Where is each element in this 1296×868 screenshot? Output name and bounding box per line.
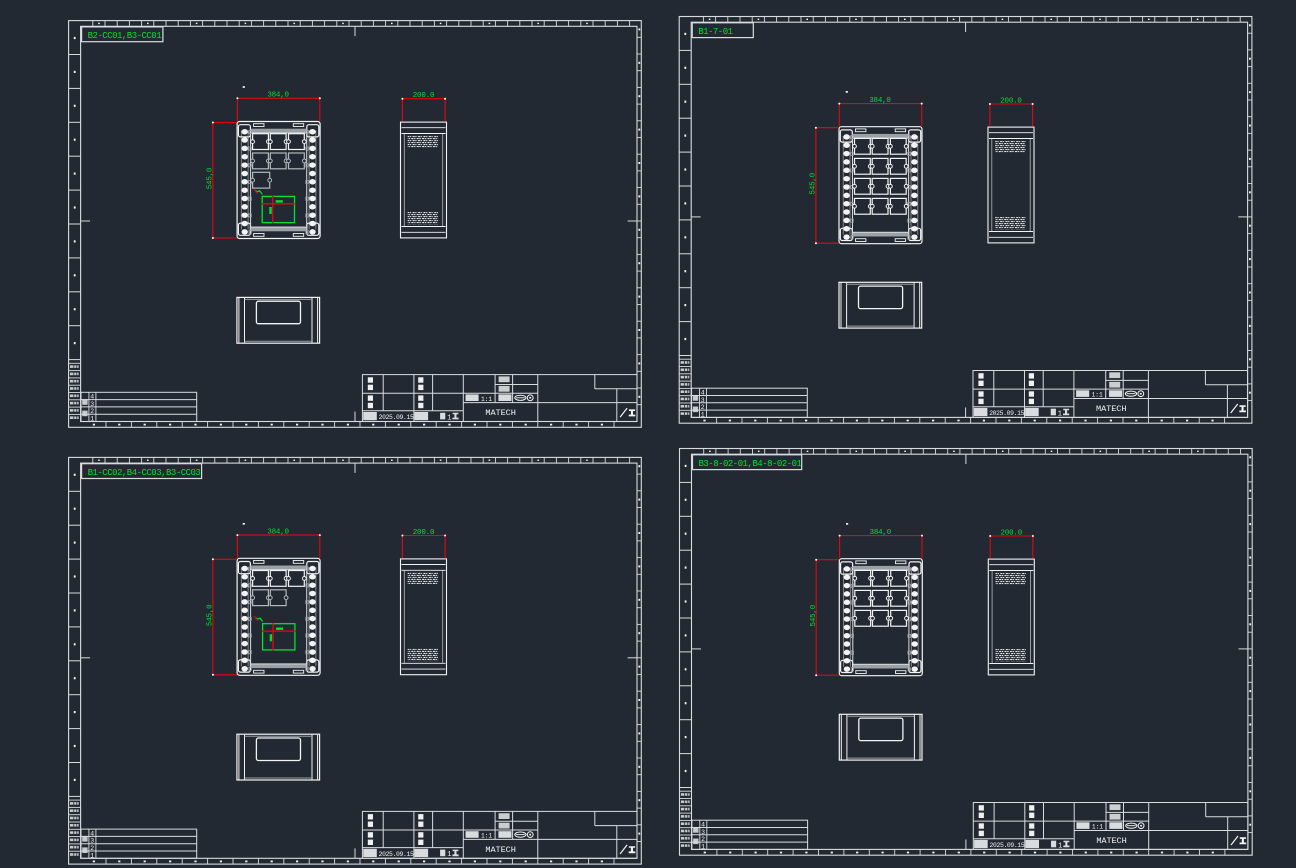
svg-text:2: 2: [90, 845, 94, 852]
svg-text:4: 4: [701, 822, 705, 829]
svg-text:2: 2: [90, 408, 94, 415]
svg-text:200.0: 200.0: [1000, 97, 1022, 105]
svg-text:1: 1: [90, 852, 94, 859]
svg-text:545,0: 545,0: [207, 604, 215, 626]
svg-text:384,0: 384,0: [869, 97, 891, 105]
svg-text:3: 3: [90, 838, 94, 845]
svg-text:545,0: 545,0: [810, 172, 818, 194]
svg-text:1:1: 1:1: [1092, 392, 1103, 399]
svg-text:545,0: 545,0: [207, 167, 215, 189]
svg-text:1: 1: [447, 414, 451, 422]
svg-text:2: 2: [701, 836, 705, 843]
svg-text:384,0: 384,0: [267, 529, 289, 537]
svg-text:MATECH: MATECH: [1096, 404, 1126, 414]
svg-text:4: 4: [701, 390, 705, 397]
svg-text:200.0: 200.0: [1001, 529, 1023, 537]
svg-text:4: 4: [90, 830, 94, 837]
svg-text:MATECH: MATECH: [485, 845, 515, 855]
svg-text:2: 2: [701, 404, 705, 411]
svg-text:B1-7-01: B1-7-01: [698, 27, 732, 37]
svg-text:1: 1: [1058, 410, 1062, 418]
svg-text:2025.09.15: 2025.09.15: [990, 842, 1025, 849]
svg-text:545,0: 545,0: [810, 604, 818, 626]
svg-text:2025.09.15: 2025.09.15: [379, 851, 414, 858]
svg-text:3: 3: [701, 397, 705, 404]
svg-text:1:1: 1:1: [481, 833, 492, 840]
svg-text:B3-8-02-01,B4-8-02-01: B3-8-02-01,B4-8-02-01: [699, 459, 802, 469]
svg-text:1: 1: [701, 843, 705, 850]
svg-text:1: 1: [701, 411, 705, 418]
svg-text:MATECH: MATECH: [485, 408, 515, 418]
svg-text:B2-CC01,B3-CC01: B2-CC01,B3-CC01: [88, 31, 162, 41]
svg-text:4: 4: [90, 394, 94, 401]
svg-text:1: 1: [90, 416, 94, 423]
svg-text:B1-CC02,B4-CC03,B3-CC03: B1-CC02,B4-CC03,B3-CC03: [88, 468, 201, 478]
svg-text:2025.09.15: 2025.09.15: [989, 410, 1024, 417]
svg-text:MATECH: MATECH: [1096, 836, 1126, 846]
svg-text:1:1: 1:1: [1092, 824, 1103, 831]
svg-text:1: 1: [1058, 842, 1062, 850]
svg-text:200.0: 200.0: [413, 529, 435, 537]
svg-text:3: 3: [701, 829, 705, 836]
svg-text:3: 3: [90, 401, 94, 408]
svg-text:200.0: 200.0: [413, 92, 435, 100]
svg-text:384,0: 384,0: [870, 529, 892, 537]
svg-text:2025.09.15: 2025.09.15: [379, 414, 414, 421]
svg-text:384,0: 384,0: [267, 92, 289, 100]
svg-text:1: 1: [447, 851, 451, 859]
svg-text:1:1: 1:1: [481, 396, 492, 403]
